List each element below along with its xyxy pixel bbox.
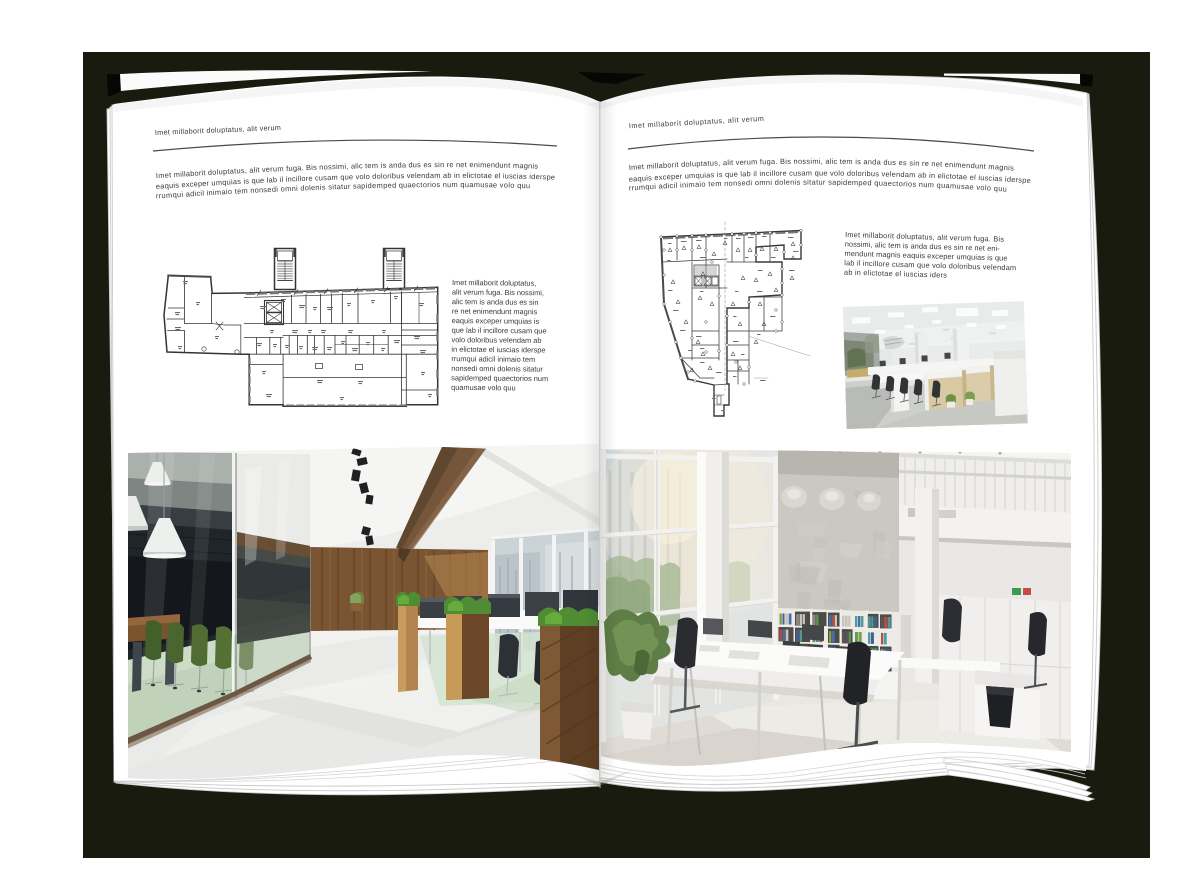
svg-text:nonsedi omni dolenis sitatur: nonsedi omni dolenis sitatur xyxy=(451,364,543,374)
svg-text:alit verum fuga. Bis nossimi,: alit verum fuga. Bis nossimi, xyxy=(452,287,544,297)
svg-text:volo doloribus velendam ab: volo doloribus velendam ab xyxy=(451,335,541,345)
svg-text:Imet millaborit doluptatus,: Imet millaborit doluptatus, xyxy=(452,278,536,288)
svg-text:in elictotae el iuscias idersp: in elictotae el iuscias iderspe xyxy=(451,345,545,355)
svg-text:alic tem is anda dus es sin: alic tem is anda dus es sin xyxy=(452,297,539,307)
svg-text:que lab il incillore cusam que: que lab il incillore cusam que xyxy=(452,326,547,336)
svg-text:quamusae volo quu: quamusae volo quu xyxy=(451,383,516,393)
svg-text:rrumqui adicil inimaio tem: rrumqui adicil inimaio tem xyxy=(451,354,535,364)
svg-text:re net enimendunt magnis: re net enimendunt magnis xyxy=(452,307,538,317)
svg-text:sapidemped quaectorios num: sapidemped quaectorios num xyxy=(451,373,548,383)
svg-text:eaquis exceper umquias is: eaquis exceper umquias is xyxy=(452,316,540,326)
